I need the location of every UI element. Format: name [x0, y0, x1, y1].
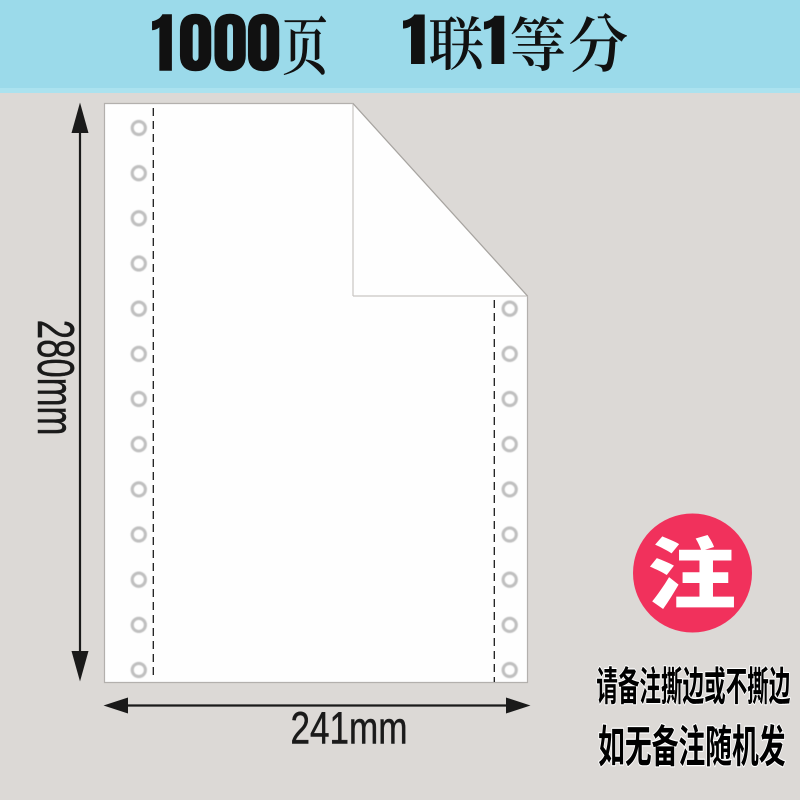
svg-text:241mm: 241mm — [291, 702, 408, 753]
svg-text:280mm: 280mm — [26, 320, 84, 436]
